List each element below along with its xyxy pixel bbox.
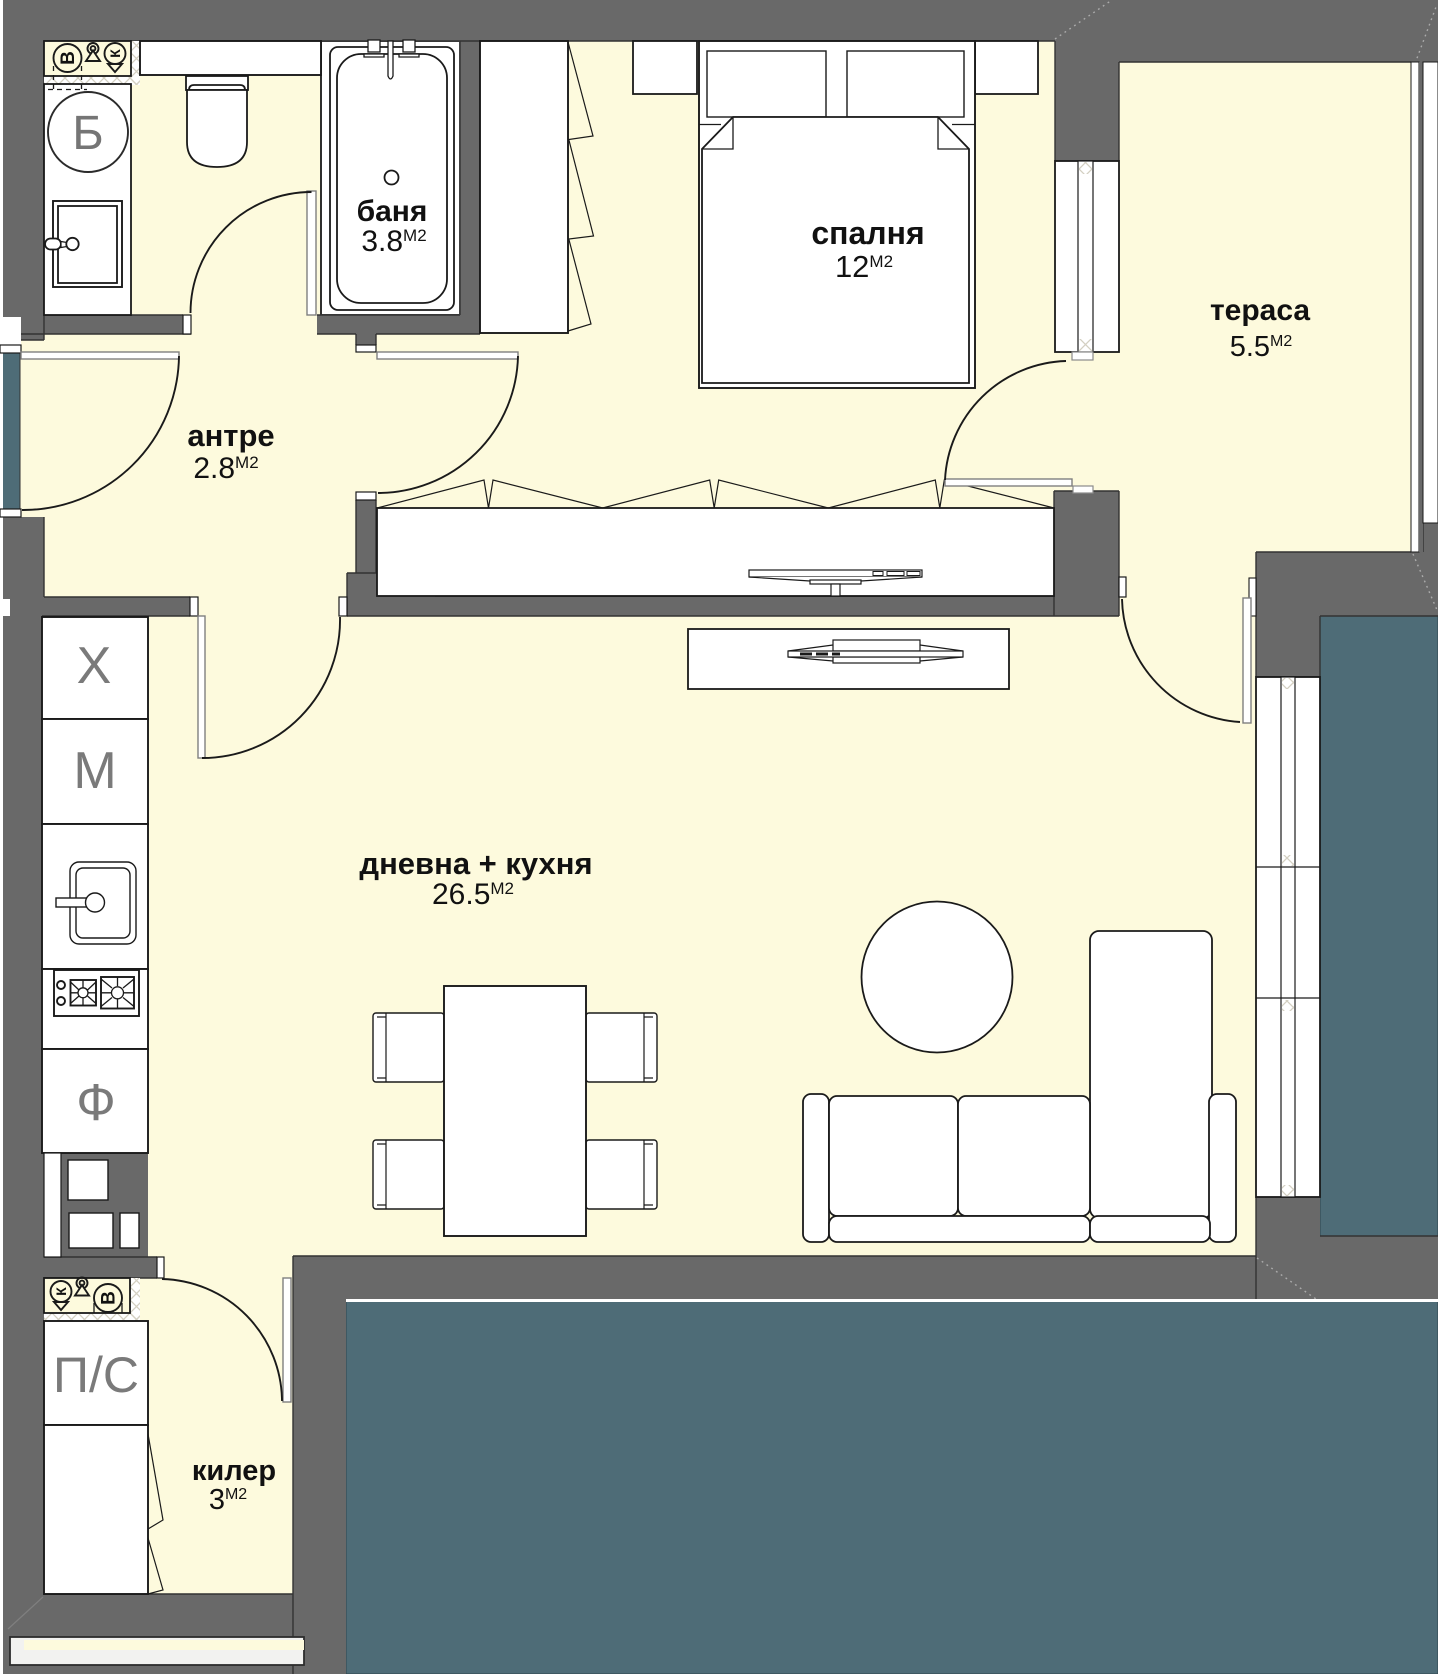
svg-text:П/С: П/С — [53, 1347, 139, 1403]
svg-text:К: К — [53, 1287, 69, 1296]
svg-text:антре: антре — [187, 418, 274, 453]
svg-text:дневна + кухня: дневна + кухня — [359, 846, 592, 881]
svg-text:В: В — [99, 1291, 120, 1305]
svg-text:Ф: Ф — [76, 1074, 116, 1132]
svg-text:тераса: тераса — [1210, 294, 1310, 327]
svg-text:В: В — [58, 51, 79, 65]
svg-text:М: М — [73, 742, 116, 800]
svg-text:баня: баня — [357, 195, 428, 228]
svg-text:килер: килер — [192, 1455, 276, 1487]
svg-text:Б: Б — [72, 107, 104, 160]
svg-text:X: X — [77, 637, 112, 695]
svg-text:спалня: спалня — [811, 215, 924, 251]
svg-text:К: К — [107, 49, 123, 58]
